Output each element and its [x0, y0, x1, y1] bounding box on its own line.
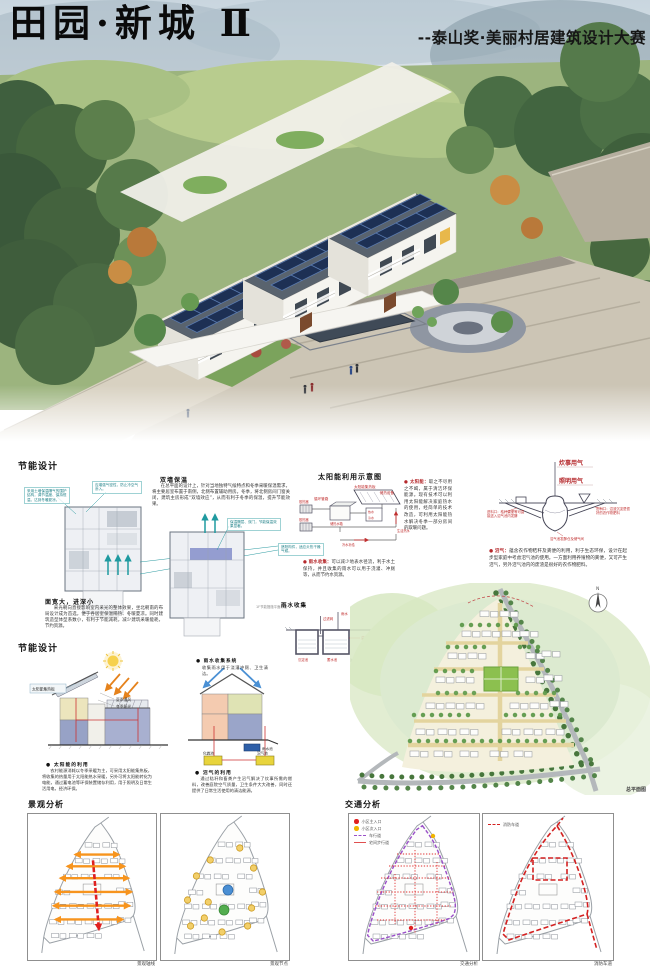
fire-lane-diagram: [482, 813, 614, 961]
biogas-diagram: 炊事用气 照明用气: [483, 450, 633, 550]
pedestrian-path-legend-icon: [354, 842, 366, 843]
label-rain: 雨水: [341, 611, 348, 616]
solar-bullet-term: ● 太阳能：: [404, 480, 429, 485]
rain-bullet-term: ● 雨水收集：: [303, 560, 331, 565]
fire-lane-legend: 消防车道: [488, 821, 519, 828]
master-plan: N: [350, 583, 650, 795]
label-rain-pool: 雨水池: [262, 746, 273, 751]
biogas-inlet-label: 进料口：秸秆粪便等可直接送入沼气池内发酵: [487, 510, 525, 519]
landscape-node-diagram: [160, 813, 290, 961]
main-entrance-marker: [409, 926, 413, 930]
aerial-render-illustration: [0, 0, 650, 455]
landscape-axis-diagram: [27, 813, 157, 961]
label-winter-sun: 冬季阳光: [116, 704, 131, 709]
double-wall-paragraph: 在总平面的设计上，针对当地独特气候特点和冬季采暖保温需求，将主要居室布置于南侧，…: [152, 484, 290, 509]
caption-landscape-node: 景观节点: [160, 961, 288, 967]
label-septic-tank: 化粪池: [203, 751, 214, 756]
caption-fire-lane: 消防车道: [482, 961, 612, 967]
label-filter: 过滤网: [323, 616, 334, 621]
callout-air-tightness: 应增强气密性，防止冷空气渗入。: [92, 481, 142, 494]
solar-use-text: 农村能源消耗以冬季采暖为主，可采用太阳能集热板，将收集的热量用于太阳能热水采暖，…: [42, 768, 152, 792]
plan1-paragraph: 采光朝向直接影响室内采光的整体效果，坐北朝南的布局设计成为首选，便于各居室保温隔…: [45, 606, 163, 631]
label-supply: 冷水补给: [342, 542, 356, 547]
solar-schematic: 循环管路 太阳能集热板 储热设备 散热器 散热器 储热水箱 热水 冷水 冷水补给…: [296, 484, 411, 554]
label-summer-vent: 夏季通风: [116, 697, 131, 702]
biogas-bullet-term: ● 沼气：: [489, 549, 509, 554]
callout-double-wall: 保温隔层、双门，节能保温效果显著。: [227, 518, 281, 531]
solar-diagram-title: 太阳能利用示意图: [318, 472, 382, 482]
section-title-traffic: 交通分析: [345, 799, 381, 810]
label-tank: 储热水箱: [330, 521, 344, 526]
label-solar-panel: 太阳能集热板: [32, 687, 55, 692]
label-radiator1: 散热器: [299, 499, 309, 504]
biogas-pool-label: 沼气池发酵仓及储气间: [550, 536, 612, 541]
label-panel: 太阳能集热板: [354, 484, 376, 489]
secondary-entrance-marker: [431, 834, 435, 838]
aerial-render: 田园·新城 Ⅱ --泰山奖·美丽村居建筑设计大赛: [0, 0, 650, 455]
label-sediment: 沉淀池: [298, 657, 309, 662]
green-node-marker: [219, 905, 229, 915]
solar-use-caption: ● 太阳能的利用: [46, 761, 89, 768]
rain-bullet: ● 雨水收集：可以减少地表水径流，利于水土保持，并且收集的雨水可以用于浇灌、冲厕…: [303, 560, 395, 580]
rain-system-caption: ● 雨水收集系统: [196, 658, 237, 664]
fire-lane-legend-icon: [488, 824, 500, 825]
compass-north-label: N: [596, 586, 599, 592]
floorplan-2: [170, 532, 244, 636]
biogas-bullet: ● 沼气：蕴含农作物秸秆及粪便的利用，利于生态环保，设计在起步型家庭中考虑沼气池…: [489, 549, 627, 570]
competition-poster: 田园·新城 Ⅱ --泰山奖·美丽村居建筑设计大赛 节能设计: [0, 0, 650, 975]
callout-wall-insulation: 采用土墙保温隔气的围护结构，调节温度、保持恒温，达到冬暖夏凉。: [24, 487, 70, 504]
central-node-marker: [223, 885, 233, 895]
biogas-house-section: 雨水池 化粪池 沼气池: [188, 668, 278, 765]
double-wall-title: 双墙保温: [160, 475, 188, 484]
biogas-outlet-label: 出料口：沼渣沉淀是很好的农作物肥料: [596, 507, 632, 516]
label-loop: 循环管路: [314, 496, 329, 501]
label-biogas-pool: 沼气池: [257, 751, 268, 756]
label-store: 储热设备: [380, 490, 395, 495]
solar-bullet: ● 太阳能：取之不尽用之不竭，属于清洁环保能源。现有技术可以利用太阳能解决家庭热…: [404, 480, 452, 533]
biogas-use-text: 通过秸秆和畜粪产生沼气解决了炊事所需的燃料，改善庭院空气质量，卫生条件大大改善，…: [192, 776, 292, 794]
vehicular-road-legend-icon: [354, 835, 366, 836]
poster-subtitle: --泰山奖·美丽村居建筑设计大赛: [418, 26, 646, 48]
label-cooking-gas: 炊事用气: [559, 459, 583, 467]
rain-system-text: 收集雨水用于浇灌冲厕、卫生清洁。: [202, 665, 268, 677]
poster-title: 田园·新城 Ⅱ: [10, 5, 257, 42]
plan1-caption: 面宽大，进深小: [45, 597, 94, 606]
compass-icon: N: [589, 586, 607, 612]
label-radiator2: 散热器: [299, 517, 309, 522]
caption-landscape-axis: 景观轴线: [27, 961, 155, 967]
traffic-legend: 小区主入口 小区次入口 车行道 宅间步行道: [354, 818, 389, 846]
label-storage: 蓄水池: [327, 657, 338, 662]
solar-house-section: 太阳能集热板 夏季通风 冬季阳光: [30, 651, 168, 749]
main-entrance-legend-icon: [354, 819, 359, 824]
label-hot: 热水: [368, 509, 374, 514]
secondary-entrance-legend-icon: [354, 826, 359, 831]
biogas-use-caption: ● 沼气的利用: [195, 769, 232, 776]
section-title-landscape: 景观分析: [28, 799, 64, 810]
caption-traffic: 交通分析: [348, 961, 478, 967]
masterplan-caption: 总平面图: [592, 786, 646, 793]
label-lighting-gas: 照明用气: [559, 477, 583, 485]
label-cold: 冷水: [368, 515, 374, 520]
sun-icon: [103, 651, 123, 671]
